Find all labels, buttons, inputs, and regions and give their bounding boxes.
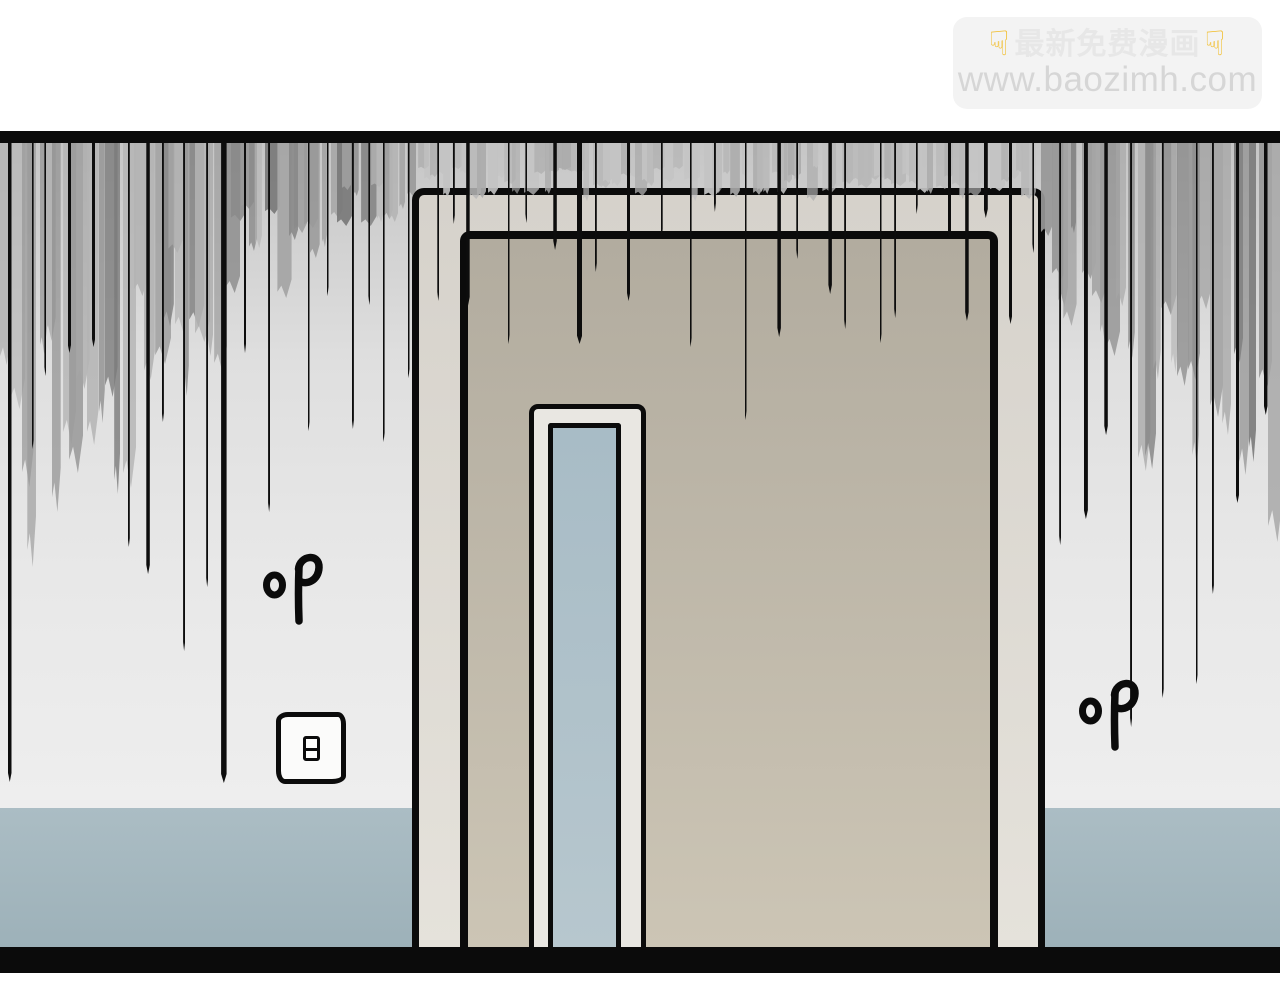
door-frame — [412, 188, 1045, 948]
watermark-badge: ☟ 最新免费漫画 ☟ www.baozimh.com — [953, 17, 1262, 109]
comic-page: ☟ 最新免费漫画 ☟ www.baozimh.com — [0, 0, 1280, 1000]
watermark-title-row: ☟ 最新免费漫画 ☟ — [989, 27, 1226, 63]
panel-border-top — [0, 131, 1280, 143]
panel-border-bottom — [0, 947, 1280, 973]
door-window-glass — [548, 423, 621, 948]
door — [460, 231, 998, 948]
watermark-url: www.baozimh.com — [958, 62, 1257, 99]
light-switch-toggle — [303, 736, 320, 761]
sfx-knock-right — [1078, 676, 1142, 754]
door-window-frame — [529, 404, 646, 948]
point-down-icon: ☟ — [1205, 27, 1227, 63]
sfx-knock-left — [262, 550, 326, 628]
point-down-icon: ☟ — [989, 27, 1011, 63]
light-switch-toggle-seam — [305, 748, 320, 751]
watermark-title: 最新免费漫画 — [1015, 29, 1201, 61]
light-switch — [276, 712, 346, 784]
